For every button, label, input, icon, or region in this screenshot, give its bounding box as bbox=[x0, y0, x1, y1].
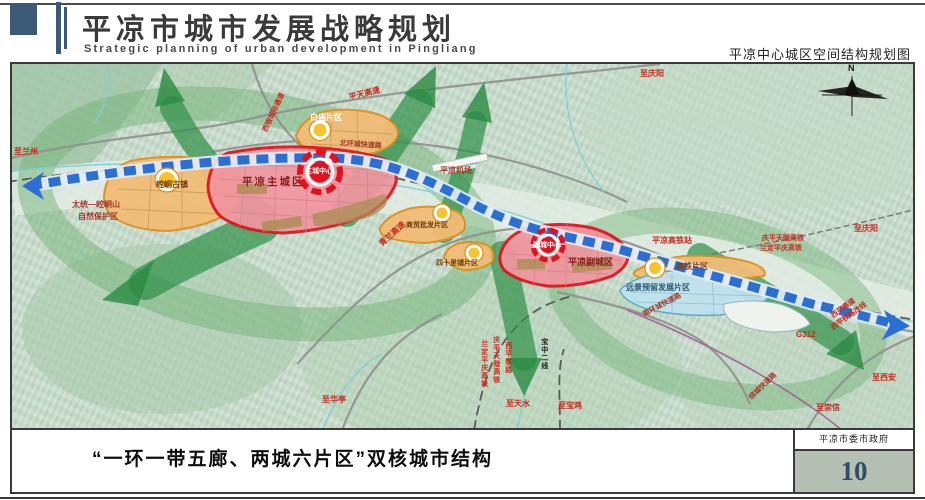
label-rail-v4: 宝中二线 bbox=[540, 338, 548, 370]
label-to-qingyang-top: 至庆阳 bbox=[640, 70, 664, 79]
compass-n-label: N bbox=[848, 64, 855, 74]
page-subtitle: Strategic planning of urban development … bbox=[84, 43, 478, 55]
planning-document-page: 平凉市城市发展战略规划 Strategic planning of urban … bbox=[0, 0, 925, 500]
label-rail-v1: 兰定平庆高铁 bbox=[480, 340, 488, 388]
label-airport: 平凉机场 bbox=[440, 167, 472, 176]
logo-square bbox=[10, 3, 37, 35]
logo-bar bbox=[56, 2, 61, 54]
label-to-lanzhou: 至兰州 bbox=[14, 148, 38, 157]
label-hsr-line-1: 庆平天陇高铁 bbox=[762, 235, 804, 243]
label-to-chongxin: 至崇信 bbox=[816, 404, 840, 413]
footer-right-box: 平凉市委市政府 10 bbox=[793, 430, 913, 492]
label-vice-city-center: 副城中心 bbox=[533, 242, 561, 250]
bottom-rule bbox=[0, 497, 925, 499]
agency-name: 平凉市委市政府 bbox=[795, 430, 913, 451]
label-nature-reserve-1: 太统—崆峒山 bbox=[72, 201, 120, 210]
label-hsr-district: 高铁片区 bbox=[676, 263, 708, 272]
label-to-qingyang-right: 至庆阳 bbox=[854, 225, 878, 234]
label-main-city-center: 主城中心 bbox=[305, 168, 333, 176]
label-rail-v3: 西平铁路 bbox=[504, 342, 512, 374]
label-hsr-station: 平凉高铁站 bbox=[652, 237, 692, 246]
label-reserve-district: 远景预留发展片区 bbox=[626, 284, 690, 293]
map-title: 平凉中心城区空间结构规划图 bbox=[729, 44, 911, 63]
figure-caption: “一环一带五廊、两城六片区”双核城市结构 bbox=[92, 430, 493, 490]
top-rule bbox=[0, 3, 925, 5]
planning-map: 至兰州 西银城际通道 平天高速 至庆阳 北环城快速路 白庙片区 平凉机场 主城中… bbox=[10, 62, 915, 430]
label-vice-city: 平凉副城区 bbox=[568, 258, 613, 268]
corridor-arrowhead bbox=[462, 82, 492, 123]
logo-bar bbox=[64, 7, 67, 49]
label-to-xian: 至西安 bbox=[872, 374, 896, 383]
page-number: 10 bbox=[795, 451, 913, 492]
label-to-baoji: 至宝鸡 bbox=[558, 402, 582, 411]
label-main-city: 平凉主城区 bbox=[242, 177, 305, 189]
label-kongtong-town: 崆峒古镇 bbox=[156, 181, 188, 190]
label-baimiao-district: 白庙片区 bbox=[310, 114, 342, 123]
label-to-tianshui: 至天水 bbox=[506, 400, 530, 409]
footer: “一环一带五廊、两城六片区”双核城市结构 平凉市委市政府 10 bbox=[10, 430, 915, 494]
label-trade-district: 商贸批发片区 bbox=[406, 222, 448, 230]
label-to-huating: 至华亭 bbox=[322, 396, 346, 405]
page-title: 平凉市城市发展战略规划 bbox=[82, 6, 456, 48]
label-rail-v2: 庆平天陇高铁 bbox=[492, 336, 500, 384]
label-sishilipu-district: 四十里铺片区 bbox=[436, 260, 478, 268]
label-hsr-line-2: 兰定平庆高铁 bbox=[760, 245, 802, 253]
label-g312: G312 bbox=[796, 331, 816, 340]
label-nature-reserve-2: 自然保护区 bbox=[78, 213, 118, 222]
